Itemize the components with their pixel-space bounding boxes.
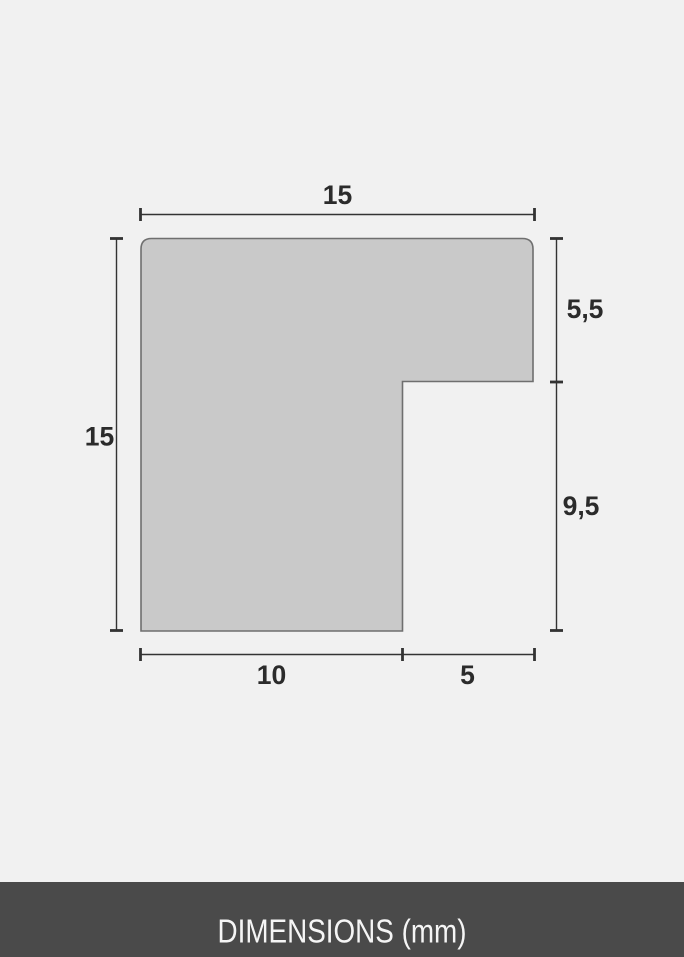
svg-text:9,5: 9,5 (563, 491, 600, 521)
svg-text:15: 15 (85, 422, 114, 452)
svg-text:10: 10 (257, 660, 286, 690)
svg-text:5,5: 5,5 (567, 294, 604, 324)
svg-text:DIMENSIONS (mm): DIMENSIONS (mm) (218, 913, 467, 950)
svg-text:5: 5 (460, 660, 475, 690)
svg-text:15: 15 (323, 180, 352, 210)
